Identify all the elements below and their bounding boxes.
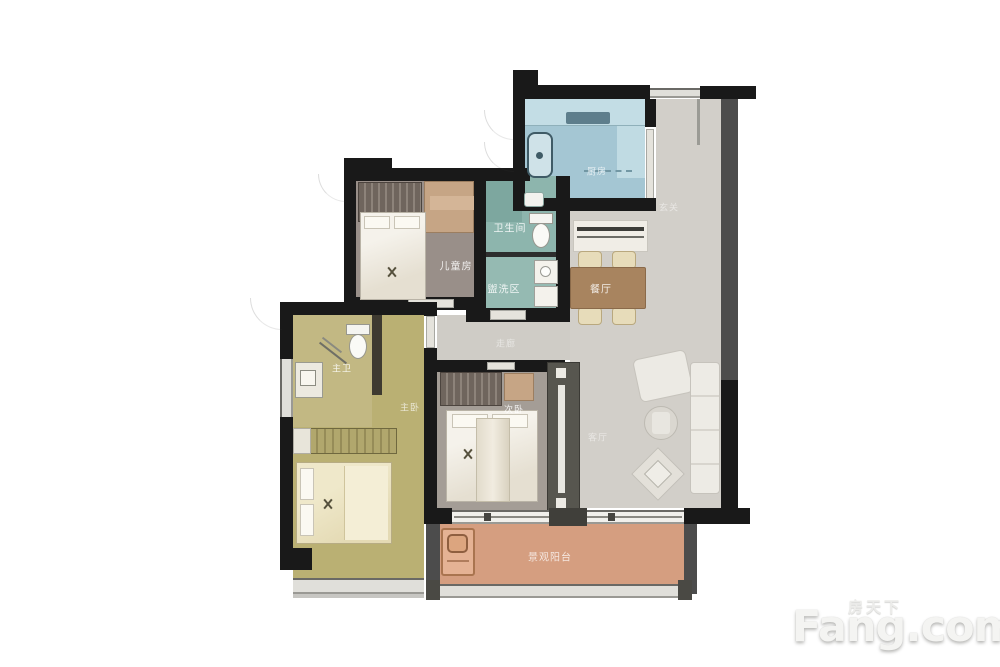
kitchen-door bbox=[646, 129, 654, 199]
master-right-wall bbox=[424, 302, 437, 316]
door-swing-arc bbox=[484, 110, 514, 140]
pillow bbox=[364, 216, 390, 229]
toilet-icon bbox=[346, 324, 370, 360]
window-end-block bbox=[426, 580, 440, 600]
window-end-block bbox=[678, 580, 692, 600]
kitchen-right-wall bbox=[645, 99, 656, 127]
dining-chair bbox=[578, 307, 602, 325]
pillow bbox=[300, 504, 314, 536]
window bbox=[650, 88, 700, 98]
room-label-wash-area: 盥洗区 bbox=[488, 281, 521, 296]
kitchen-left-wall bbox=[513, 99, 525, 198]
sink-faucet bbox=[536, 152, 543, 159]
track-tick bbox=[608, 513, 615, 521]
wall bbox=[424, 508, 452, 524]
master-bath-partition bbox=[372, 315, 382, 395]
blanket-fold bbox=[344, 466, 388, 540]
bathroom-sink bbox=[524, 192, 544, 207]
second-wardrobe bbox=[440, 372, 502, 406]
sideboard-line bbox=[577, 227, 644, 231]
sliding-door-track bbox=[558, 385, 565, 493]
room-label-living-room: 客厅 bbox=[588, 431, 608, 444]
sliding-door-handle bbox=[556, 368, 566, 378]
window-sill bbox=[293, 594, 424, 598]
room-label-bathroom: 卫生间 bbox=[494, 220, 527, 235]
room-label-master-bath: 主卫 bbox=[332, 362, 352, 375]
table-line bbox=[652, 412, 670, 434]
pillow bbox=[394, 216, 420, 229]
floor-plan-image: 厨房 卫生间 盥洗区 儿童房 餐厅 玄关 走廊 主卫 主卧 次卧 客厅 景观阳台… bbox=[0, 0, 1000, 667]
wall bbox=[684, 508, 750, 524]
plant-decal bbox=[386, 266, 398, 278]
room-label-kitchen: 厨房 bbox=[587, 165, 607, 178]
toilet-icon bbox=[529, 213, 553, 249]
room-label-kids-room: 儿童房 bbox=[440, 258, 473, 273]
pillow bbox=[300, 468, 314, 500]
room-label-foyer: 玄关 bbox=[659, 201, 679, 214]
master-bottom-window bbox=[293, 578, 424, 594]
track-tick bbox=[484, 513, 491, 521]
second-bedroom-door bbox=[487, 362, 515, 370]
master-door bbox=[426, 316, 435, 348]
entry-screen-line bbox=[697, 99, 700, 145]
wall bbox=[721, 380, 738, 508]
room-label-master-bedroom: 主卧 bbox=[400, 401, 420, 414]
wall bbox=[700, 86, 756, 99]
room-label-corridor: 走廊 bbox=[496, 337, 516, 350]
plant-decal bbox=[462, 448, 474, 460]
bathroom-right-wall bbox=[556, 176, 570, 308]
door-swing-arc bbox=[318, 174, 346, 202]
door-swing-arc bbox=[250, 298, 282, 330]
kids-bath-divider-wall bbox=[474, 168, 486, 310]
dresser-cap bbox=[293, 428, 311, 454]
washer-drum bbox=[447, 534, 468, 553]
track-block bbox=[549, 508, 587, 526]
wall-corner bbox=[280, 548, 312, 570]
bath-wash-divider bbox=[486, 252, 556, 257]
blanket-drape bbox=[476, 418, 510, 502]
watermark: 房天下 Fang.com bbox=[790, 594, 1000, 664]
basin bbox=[540, 266, 551, 277]
dining-chair bbox=[612, 307, 636, 325]
master-left-wall bbox=[280, 417, 293, 560]
washer-line bbox=[447, 560, 469, 562]
sofa bbox=[690, 362, 720, 494]
room-label-balcony: 景观阳台 bbox=[528, 549, 572, 564]
master-left-window bbox=[280, 359, 293, 417]
sideboard-line bbox=[577, 236, 644, 238]
wash-vanity bbox=[534, 286, 558, 307]
balcony-bottom-window bbox=[432, 584, 686, 598]
plant-decal bbox=[322, 498, 334, 510]
kids-desk-top bbox=[430, 196, 474, 210]
cooktop bbox=[566, 112, 610, 124]
master-right-wall bbox=[424, 348, 437, 508]
master-basin bbox=[300, 370, 316, 386]
wash-door bbox=[490, 310, 526, 320]
room-label-second-bedroom: 次卧 bbox=[504, 403, 524, 416]
room-label-dining: 餐厅 bbox=[590, 281, 612, 296]
watermark-logo: Fang.com bbox=[792, 602, 1000, 652]
second-desk bbox=[504, 373, 534, 401]
wall bbox=[513, 85, 650, 99]
master-top-wall bbox=[280, 302, 437, 315]
entry-cabinet-wall bbox=[721, 99, 738, 380]
sliding-door-handle bbox=[556, 498, 566, 508]
